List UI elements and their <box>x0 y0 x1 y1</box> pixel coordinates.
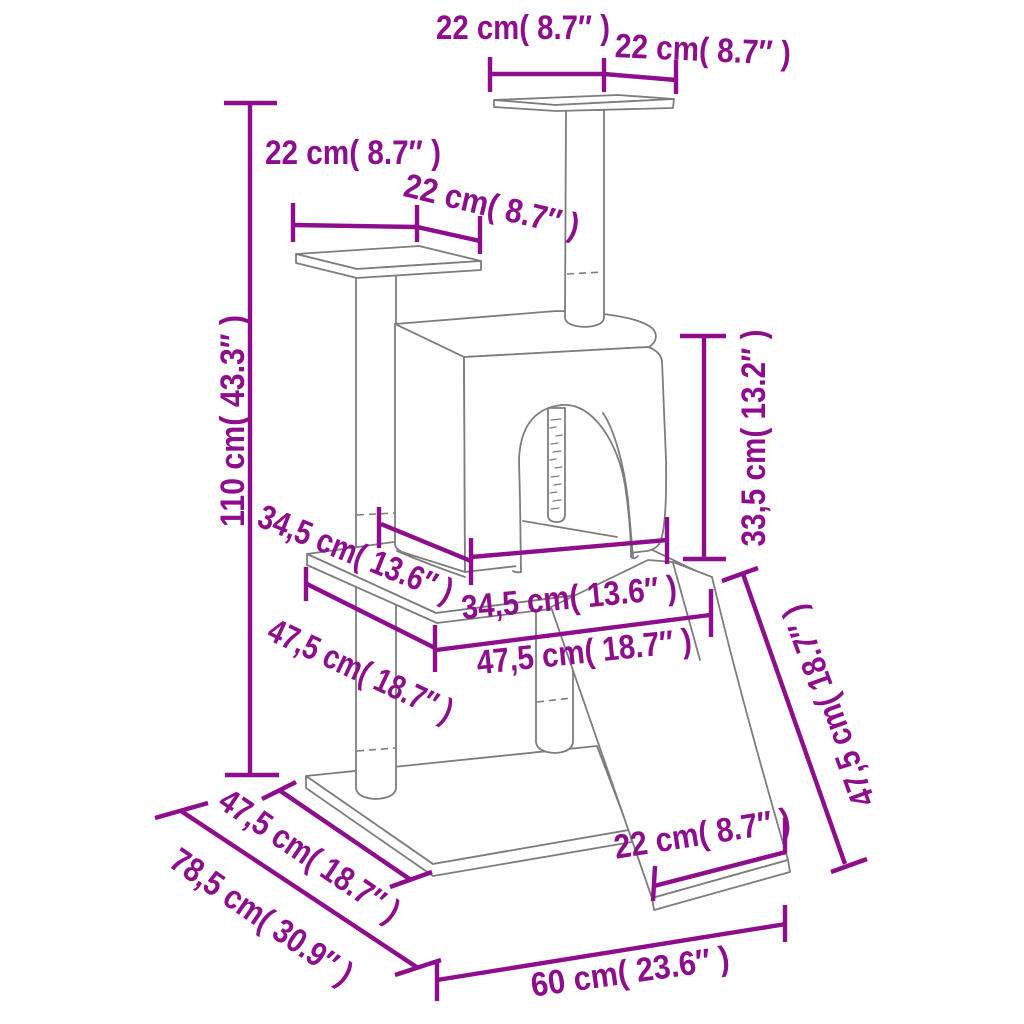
svg-text:33,5 cm( 13.2″ ): 33,5 cm( 13.2″ ) <box>735 330 773 547</box>
svg-text:22 cm( 8.7″ ): 22 cm( 8.7″ ) <box>265 134 441 172</box>
svg-text:22 cm( 8.7″ ): 22 cm( 8.7″ ) <box>436 9 610 47</box>
svg-text:22 cm( 8.7″ ): 22 cm( 8.7″ ) <box>614 27 791 73</box>
svg-text:110 cm( 43.3″ ): 110 cm( 43.3″ ) <box>214 315 252 527</box>
